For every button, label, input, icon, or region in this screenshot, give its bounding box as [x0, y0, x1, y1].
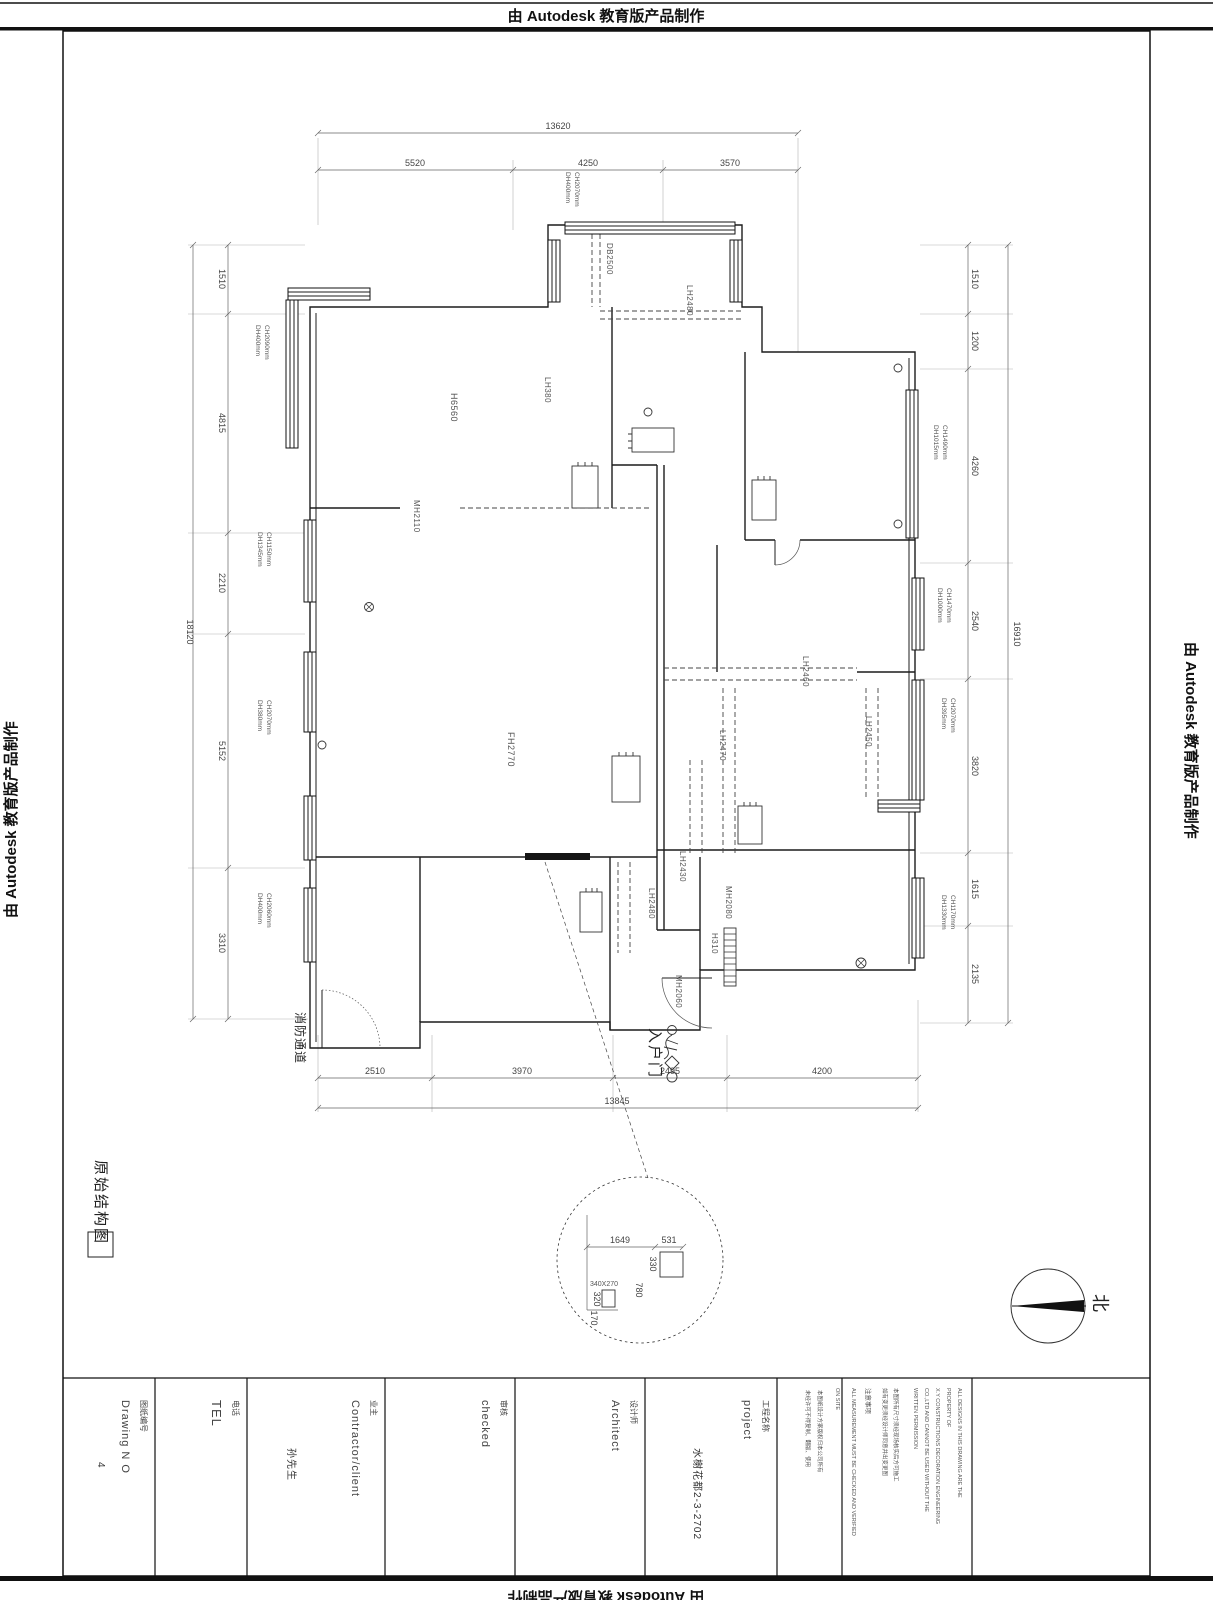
svg-text:project: project [741, 1400, 753, 1440]
left-window-1 [304, 520, 316, 602]
corner-window-vertical [286, 300, 298, 448]
detail-dim-330: 330 [648, 1256, 658, 1271]
opening-label: DH400mmCH2070mm [564, 172, 580, 207]
svg-text:ALL DESIGNS IN THIS DRAWING AR: ALL DESIGNS IN THIS DRAWING ARE THE [956, 1388, 962, 1498]
dim-bottom-total: 13845 [604, 1096, 629, 1106]
detail-dim-531: 531 [661, 1235, 676, 1245]
svg-text:X.Y CONSTRUCTIONS DECORATION E: X.Y CONSTRUCTIONS DECORATION ENGINEERING [934, 1388, 940, 1524]
opening-label: DH1330mmCH1170mm [940, 895, 956, 930]
detail-dim-340x270: 340X270 [590, 1281, 618, 1288]
svg-text:图纸编号: 图纸编号 [139, 1400, 149, 1432]
north-arrow: 北 [1011, 1269, 1110, 1343]
svg-text:业主: 业主 [369, 1400, 379, 1416]
left-window-3 [304, 796, 316, 860]
detail-dim-170: 170 [589, 1310, 599, 1325]
radiator [612, 752, 640, 802]
svg-text:电话: 电话 [231, 1400, 241, 1416]
opening-label: DH400mmCH2090mm [254, 325, 270, 360]
svg-text:CH2070mm: CH2070mm [949, 698, 956, 733]
field-tel: 电话 TEL [209, 1400, 241, 1427]
room-label-lh2460: LH2460 [801, 656, 810, 687]
dim-bottom-2: 3970 [512, 1066, 532, 1076]
watermark-band-top: 由 Autodesk 教育版产品制作 [0, 3, 1213, 31]
dim-left-4: 5152 [217, 741, 227, 761]
dim-right-4: 2540 [970, 611, 980, 631]
field-project: 工程名称 project 水榭花都2-3-2702 [691, 1400, 771, 1540]
radiator [628, 428, 674, 452]
dim-right-3: 4260 [970, 456, 980, 476]
dim-right-7: 2135 [970, 964, 980, 984]
detail-dim-320: 320 [592, 1291, 602, 1306]
extension-lines [188, 138, 1013, 1112]
dim-left-3: 2210 [217, 573, 227, 593]
svg-text:DH400mm: DH400mm [254, 325, 261, 356]
opening-label: DH1000mmCH1470mm [936, 588, 952, 623]
bay-jamb-right [730, 240, 742, 302]
right-window-3 [912, 680, 924, 800]
room-label-lh380: LH380 [543, 377, 552, 403]
svg-text:本图纸设计方案版权归本公司所有: 本图纸设计方案版权归本公司所有 [816, 1390, 824, 1473]
room-label-lh2470: LH2470 [718, 730, 727, 761]
room-label-lh2450: LH2450 [864, 716, 873, 747]
bedroom-door [775, 540, 800, 565]
svg-text:CO.,LTD AND CANNOT BE USED WIT: CO.,LTD AND CANNOT BE USED WITHOUT THE [923, 1388, 929, 1512]
bottom-window-strip [878, 800, 920, 812]
room-label-fh2770: FH2770 [506, 732, 516, 767]
field-architect: 设计师 Architect [609, 1400, 639, 1452]
dimension-lines [190, 130, 1011, 1111]
svg-text:CH2090mm: CH2090mm [263, 325, 270, 360]
svg-text:WRITTEN PERMISSION: WRITTEN PERMISSION [912, 1388, 918, 1449]
fire-escape-label: 消防通道 [293, 1012, 308, 1064]
detail-bubble: 1649 531 330 340X270 320 170 780 [545, 862, 723, 1343]
dim-left-1: 1510 [217, 269, 227, 289]
room-label-h6560: H6560 [449, 393, 459, 422]
dim-right-6: 1615 [970, 879, 980, 899]
dim-right-2: 1200 [970, 331, 980, 351]
room-label-mh2110: MH2110 [412, 500, 421, 533]
field-checked: 审核 checked [479, 1400, 509, 1448]
svg-text:Contractor/client: Contractor/client [349, 1400, 361, 1497]
dim-left-2: 4815 [217, 413, 227, 433]
plan-title: 原始结构图 [88, 1160, 113, 1257]
opening-label: DH1015mmCH1490mm [932, 425, 948, 460]
svg-text:DH1345mm: DH1345mm [256, 532, 263, 567]
title-block: 图纸编号 Drawing N O 4 电话 TEL 业主 Contractor/… [63, 1378, 1150, 1576]
right-window-4 [912, 878, 924, 958]
entry-door [662, 978, 712, 1028]
corner-window-horizontal [288, 288, 370, 300]
dim-right-1: 1510 [970, 269, 980, 289]
opening-labels: DH400mmCH2070mm DH400mmCH2090mm DH1345mm… [254, 172, 956, 930]
svg-text:DH400mm: DH400mm [564, 172, 571, 203]
windows [286, 222, 924, 962]
svg-text:CH1170mm: CH1170mm [949, 895, 956, 929]
svg-text:Architect: Architect [609, 1400, 621, 1452]
opening-label: DH380mmCH2070mm [256, 700, 272, 735]
room-label-db2500: DB2500 [605, 243, 614, 275]
left-window-4 [304, 888, 316, 962]
svg-text:CH1490mm: CH1490mm [941, 425, 948, 460]
dim-right-total: 16910 [1012, 621, 1022, 646]
svg-text:孙先生: 孙先生 [285, 1448, 298, 1481]
svg-text:DH395mm: DH395mm [940, 698, 947, 729]
bay-jamb-left [548, 240, 560, 302]
field-note-onsite: ON SITE [834, 1388, 840, 1410]
watermark-top: 由 Autodesk 教育版产品制作 [508, 7, 705, 25]
field-drawing-no: 图纸编号 Drawing N O 4 [95, 1400, 149, 1474]
right-window-2 [912, 578, 924, 650]
svg-text:DH1000mm: DH1000mm [936, 588, 943, 623]
dim-top-3: 3570 [720, 158, 740, 168]
drawing-canvas: 由 Autodesk 教育版产品制作 由 Autodesk 教育版产品制作 由 … [0, 0, 1213, 1600]
watermark-right: 由 Autodesk 教育版产品制作 [1182, 642, 1200, 839]
watermark-left: 由 Autodesk 教育版产品制作 [2, 721, 20, 918]
svg-text:DH400mm: DH400mm [256, 893, 263, 924]
svg-text:工程名称: 工程名称 [761, 1400, 771, 1432]
dim-bottom-4: 4200 [812, 1066, 832, 1076]
right-window-1 [906, 390, 918, 538]
svg-text:CH1150mm: CH1150mm [265, 532, 272, 566]
svg-text:4: 4 [95, 1462, 106, 1469]
svg-text:如有变更须经设计师同意并出变更图: 如有变更须经设计师同意并出变更图 [881, 1388, 889, 1477]
svg-text:PROPERTY OF: PROPERTY OF [945, 1388, 951, 1428]
room-label-h310: H310 [710, 933, 719, 954]
detail-dim-780: 780 [634, 1282, 644, 1297]
field-notes-cn: 本图纸设计方案版权归本公司所有 未经许可不得复制、翻版、使用 [804, 1390, 824, 1473]
svg-text:checked: checked [479, 1400, 491, 1448]
svg-text:ALL MEASUREMENT MUST BE CHECKE: ALL MEASUREMENT MUST BE CHECKED AND VERI… [850, 1388, 856, 1536]
svg-text:DH1015mm: DH1015mm [932, 425, 939, 460]
field-notes-mixed: ALL DESIGNS IN THIS DRAWING ARE THE PROP… [850, 1388, 962, 1536]
opening-label: DH395mmCH2070mm [940, 698, 956, 733]
dim-left-total: 18120 [185, 619, 195, 644]
watermark-band-bottom: 由 Autodesk 教育版产品制作 [0, 1576, 1213, 1600]
radiator [752, 476, 776, 520]
opening-label: DH400mmCH2060mm [256, 893, 272, 928]
dim-bottom-1: 2510 [365, 1066, 385, 1076]
room-label-mh2060: MH2060 [674, 975, 683, 1008]
field-client: 业主 Contractor/client 孙先生 [285, 1400, 379, 1497]
svg-text:CH2070mm: CH2070mm [573, 172, 580, 207]
svg-text:设计师: 设计师 [629, 1400, 639, 1424]
svg-text:Drawing N O: Drawing N O [119, 1400, 131, 1474]
dim-left-5: 3310 [217, 933, 227, 953]
cad-sheet: { "watermarks": { "top": "由 Autodesk 教育版… [0, 0, 1213, 1600]
entry-door-label: 入户门 [646, 1028, 663, 1079]
dim-top-2: 4250 [578, 158, 598, 168]
dim-top-1: 5520 [405, 158, 425, 168]
svg-text:未经许可不得复制、翻版、使用: 未经许可不得复制、翻版、使用 [804, 1390, 812, 1467]
north-label: 北 [1090, 1294, 1110, 1314]
bay-window-top [565, 222, 735, 234]
opening-label: DH1345mmCH1150mm [256, 532, 272, 567]
room-label-lh2430: LH2430 [678, 851, 687, 882]
dim-top-total: 13620 [545, 121, 570, 131]
interior-walls [310, 307, 915, 1030]
room-labels: H6560 LH380 MH2110 DB2500 LH2480 FH2770 … [412, 243, 873, 1008]
svg-text:水榭花都2-3-2702: 水榭花都2-3-2702 [691, 1448, 704, 1540]
watermark-bottom: 由 Autodesk 教育版产品制作 [508, 1588, 705, 1600]
svg-text:CH1470mm: CH1470mm [945, 588, 952, 623]
room-label-lh2480-top: LH2480 [685, 285, 694, 316]
svg-text:DH380mm: DH380mm [256, 700, 263, 731]
room-label-mh2080: MH2080 [724, 886, 733, 919]
left-window-2 [304, 652, 316, 732]
detailed-beam [525, 853, 590, 860]
fire-escape-door [322, 990, 380, 1048]
svg-text:本图所有尺寸须经现场核实后方可施工: 本图所有尺寸须经现场核实后方可施工 [892, 1388, 900, 1482]
radiator [572, 462, 598, 508]
svg-text:注意事项: 注意事项 [864, 1388, 873, 1415]
svg-text:CH2070mm: CH2070mm [265, 700, 272, 735]
entry-step-hatch [724, 928, 736, 986]
beam-dashed-lines [460, 234, 878, 953]
detail-dim-1649: 1649 [610, 1235, 630, 1245]
radiator [580, 888, 602, 932]
dim-right-5: 3820 [970, 756, 980, 776]
svg-text:DH1330mm: DH1330mm [940, 895, 947, 930]
room-label-lh2480-bottom: LH2480 [647, 888, 656, 919]
svg-text:CH2060mm: CH2060mm [265, 893, 272, 928]
svg-text:审核: 审核 [499, 1400, 509, 1416]
dimensions-horizontal: 13620 5520 4250 3570 2510 3970 2495 4200… [365, 121, 832, 1106]
radiator [738, 802, 762, 844]
svg-text:TEL: TEL [209, 1400, 224, 1427]
